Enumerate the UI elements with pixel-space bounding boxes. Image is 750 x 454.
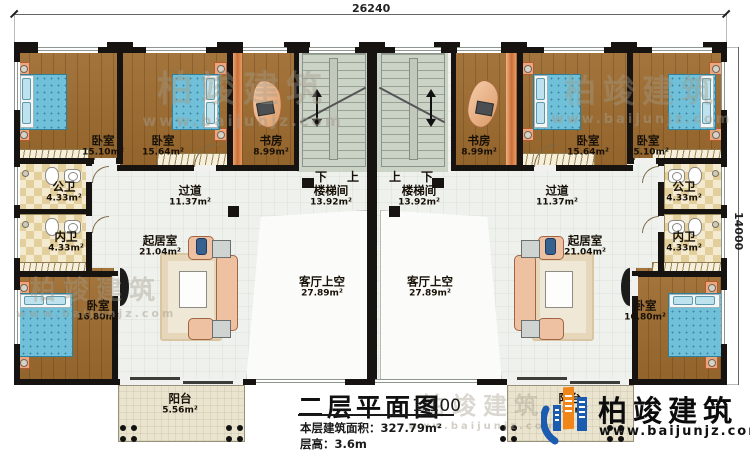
room-area: 15.64m² <box>142 147 184 157</box>
window <box>14 167 20 205</box>
sliding-door <box>517 377 567 380</box>
room-label-bedroom: 卧室 15.10m² <box>627 135 669 158</box>
room-name: 楼梯间 <box>310 185 352 198</box>
room-area: 4.33m² <box>666 243 702 253</box>
floor-drain-icon <box>22 170 29 177</box>
title-underline <box>298 414 454 416</box>
door-opening <box>86 166 92 182</box>
column-dot <box>226 425 232 431</box>
window <box>38 47 98 53</box>
room-name: 卧室 <box>627 135 669 148</box>
room-name: 卧室 <box>77 300 119 313</box>
room-label-bedroom: 卧室 15.64m² <box>142 135 184 158</box>
room-label-living: 起居室 21.04m² <box>139 235 181 258</box>
stair-down-label: 下 <box>315 168 327 185</box>
wall-interior <box>14 271 118 277</box>
room-area: 8.99m² <box>253 147 289 157</box>
window <box>375 379 477 385</box>
room-name: 公卫 <box>666 181 702 194</box>
study-door-strip <box>506 50 516 169</box>
column-dot <box>500 425 506 431</box>
window <box>256 379 345 385</box>
room-area: 21.04m² <box>139 247 181 257</box>
room-area: 16.80m² <box>77 312 119 322</box>
window <box>721 290 727 344</box>
window <box>309 47 355 53</box>
side-table <box>521 320 540 338</box>
arrow-up-icon <box>312 89 322 97</box>
room-name: 卧室 <box>567 135 609 148</box>
lamp-icon <box>712 65 720 73</box>
window <box>14 62 20 110</box>
window <box>457 47 501 53</box>
room-area: 15.10m² <box>82 147 124 157</box>
room-area: 15.64m² <box>567 147 609 157</box>
room-name: 公卫 <box>46 181 82 194</box>
wall-interior <box>632 271 727 277</box>
room-name: 卧室 <box>142 135 184 148</box>
room-label-public-bath: 公卫 4.33m² <box>46 181 82 204</box>
room-label-bedroom: 卧室 15.64m² <box>567 135 609 158</box>
window <box>721 167 727 205</box>
person-figure <box>545 238 556 255</box>
sliding-door <box>183 381 233 384</box>
room-label-bedroom: 卧室 16.80m² <box>624 300 666 323</box>
wall-interior <box>14 209 92 214</box>
pillow <box>702 78 711 100</box>
room-label-void: 客厅上空 27.89m² <box>407 276 453 299</box>
stair-down-label: 下 <box>421 168 433 185</box>
window <box>14 290 20 344</box>
side-table <box>521 240 540 258</box>
column-dot <box>131 425 137 431</box>
wall-party-center <box>367 47 377 385</box>
lamp-icon <box>20 131 28 139</box>
column-dot <box>120 436 126 442</box>
room-area: 5.56m² <box>162 405 198 415</box>
lamp-icon <box>712 131 720 139</box>
floor-drain-icon <box>712 170 719 177</box>
window <box>14 218 20 258</box>
column-dot <box>131 436 137 442</box>
room-label-stairwell: 楼梯间 13.92m² <box>398 185 440 208</box>
computer-monitor-icon <box>475 101 494 117</box>
lamp-icon <box>708 359 716 367</box>
wall-interior <box>294 47 299 171</box>
room-name: 起居室 <box>564 235 606 248</box>
room-label-stairwell: 楼梯间 13.92m² <box>310 185 352 208</box>
window <box>243 47 287 53</box>
room-area: 13.92m² <box>310 197 352 207</box>
building-logo-icon <box>541 383 593 445</box>
wall-pier <box>107 42 133 53</box>
armchair <box>188 318 214 340</box>
room-label-corridor: 过道 11.37m² <box>169 185 211 208</box>
wall-pier <box>14 42 38 53</box>
room-name: 客厅上空 <box>407 276 453 289</box>
pillow <box>673 296 693 305</box>
stair-up-label: 上 <box>389 168 401 185</box>
room-name: 起居室 <box>139 235 181 248</box>
wall-pier <box>284 42 310 53</box>
room-label-void: 客厅上空 27.89m² <box>299 276 345 299</box>
room-area: 21.04m² <box>564 247 606 257</box>
coffee-table <box>179 271 207 308</box>
room-name: 卧室 <box>82 135 124 148</box>
window <box>721 62 727 110</box>
room-label-private-bath: 内卫 4.33m² <box>48 231 84 254</box>
door-opening <box>632 276 638 296</box>
column-dot <box>237 436 243 442</box>
room-label-private-bath: 内卫 4.33m² <box>666 231 702 254</box>
side-table <box>212 240 231 258</box>
stair-rail-left <box>329 58 338 160</box>
lamp-icon <box>20 284 28 292</box>
stair-direction-arrow <box>430 96 432 120</box>
column <box>389 206 400 217</box>
room-area: 27.89m² <box>407 288 453 298</box>
pillow <box>22 78 31 100</box>
room-name: 楼梯间 <box>398 185 440 198</box>
room-area: 4.33m² <box>48 243 84 253</box>
sliding-door <box>130 377 180 380</box>
room-name: 内卫 <box>666 231 702 244</box>
lamp-icon <box>20 359 28 367</box>
wall-pier <box>217 42 243 53</box>
wall-interior <box>517 47 523 171</box>
wall-interior <box>658 209 727 214</box>
column-dot <box>511 425 517 431</box>
lamp-icon <box>217 131 225 139</box>
room-label-living: 起居室 21.04m² <box>564 235 606 258</box>
room-label-study: 书房 8.99m² <box>253 135 289 158</box>
room-area: 16.80m² <box>624 312 666 322</box>
plan-floor-height-text: 层高：3.6m <box>300 436 367 452</box>
room-area: 27.89m² <box>299 288 345 298</box>
arrow-down-icon <box>426 119 436 127</box>
floor-drain-icon <box>712 221 719 228</box>
window <box>395 47 441 53</box>
wall-interior <box>227 47 233 171</box>
window <box>652 47 712 53</box>
room-area: 4.33m² <box>46 193 82 203</box>
room-name: 卧室 <box>624 300 666 313</box>
room-area: 8.99m² <box>461 147 497 157</box>
window <box>721 218 727 258</box>
armchair <box>538 318 564 340</box>
floor-drain-icon <box>22 221 29 228</box>
lamp-icon <box>708 284 716 292</box>
brand-url: www.baijunjz.com <box>599 424 750 439</box>
door-opening <box>86 216 92 232</box>
lamp-icon <box>524 65 532 73</box>
wall-pier <box>359 42 385 53</box>
room-label-bedroom: 卧室 15.10m² <box>82 135 124 158</box>
coffee-table <box>545 271 573 308</box>
window <box>544 47 604 53</box>
arrow-up-icon <box>426 89 436 97</box>
plan-area-text: 本层建筑面积：327.79m² <box>300 420 442 436</box>
room-name: 书房 <box>253 135 289 148</box>
room-label-bedroom: 卧室 16.80m² <box>77 300 119 323</box>
pillow <box>206 78 215 100</box>
stair-up-label: 上 <box>347 168 359 185</box>
dimension-right-value: 14000 <box>732 212 745 250</box>
room-name: 书房 <box>461 135 497 148</box>
wall-pier <box>611 42 637 53</box>
floor-plan-canvas: 26240 14000 <box>0 0 750 454</box>
room-area: 13.92m² <box>398 197 440 207</box>
pillow <box>24 296 44 305</box>
room-label-balcony: 阳台 5.56m² <box>162 393 198 416</box>
pillow <box>22 102 31 124</box>
window <box>146 47 206 53</box>
pillow <box>702 102 711 124</box>
stair-direction-arrow <box>316 96 318 120</box>
pillow <box>206 102 215 124</box>
pillow <box>536 102 545 124</box>
column-dot <box>500 436 506 442</box>
lamp-icon <box>217 65 225 73</box>
room-name: 内卫 <box>48 231 84 244</box>
wall-interior <box>451 47 456 171</box>
column-dot <box>237 425 243 431</box>
nightstand <box>705 356 718 369</box>
brand-logo-icon <box>541 383 593 445</box>
wall-pier <box>243 379 256 385</box>
room-area: 11.37m² <box>536 197 578 207</box>
wall-pier <box>345 379 375 385</box>
arrow-down-icon <box>312 119 322 127</box>
room-name: 过道 <box>536 185 578 198</box>
pillow <box>695 296 715 305</box>
room-name: 客厅上空 <box>299 276 345 289</box>
extension-line <box>726 14 727 44</box>
dimension-top-value: 26240 <box>352 2 390 15</box>
side-table <box>212 320 231 338</box>
room-label-public-bath: 公卫 4.33m² <box>666 181 702 204</box>
extension-line <box>14 14 15 44</box>
room-label-study: 书房 8.99m² <box>461 135 497 158</box>
study-door-strip <box>232 50 242 169</box>
room-name: 阳台 <box>162 393 198 406</box>
column-dot <box>511 436 517 442</box>
room-area: 11.37m² <box>169 197 211 207</box>
lamp-icon <box>524 131 532 139</box>
wall-pier <box>477 379 507 385</box>
person-figure <box>196 238 207 255</box>
column-dot <box>226 436 232 442</box>
pillow <box>536 78 545 100</box>
door-opening <box>112 276 118 296</box>
room-name: 过道 <box>169 185 211 198</box>
lamp-icon <box>20 65 28 73</box>
room-area: 4.33m² <box>666 193 702 203</box>
column <box>228 206 239 217</box>
column-dot <box>120 425 126 431</box>
plan-scale: 1:100 <box>412 396 461 416</box>
wall-pier <box>501 42 527 53</box>
room-area: 15.10m² <box>627 147 669 157</box>
pillow <box>46 296 66 305</box>
room-label-corridor: 过道 11.37m² <box>536 185 578 208</box>
